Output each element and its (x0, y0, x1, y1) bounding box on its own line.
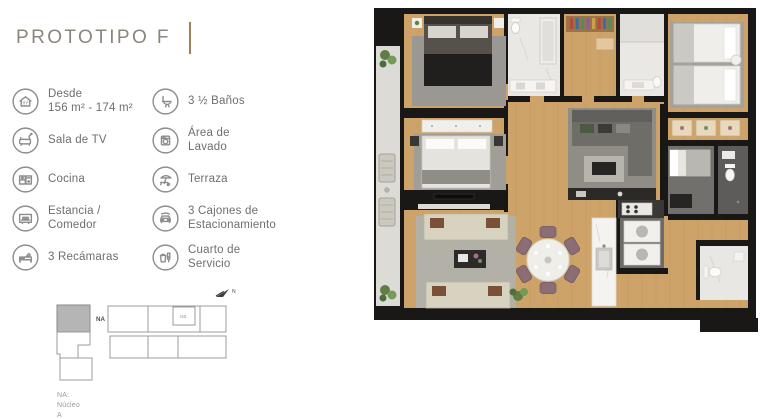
plan-terrace (376, 46, 400, 306)
plan-bathroom-2 (620, 14, 664, 96)
plan-master-bedroom (412, 16, 506, 106)
prototype-brochure-page: PROTOTIPO F m² Desde156 m² - 174 m² (0, 0, 773, 419)
minimap-legend: NA: Núcleo A NB: Núcleo B (57, 391, 80, 419)
highlighted-unit (57, 305, 90, 332)
legend-line: NA: Núcleo A (57, 391, 80, 419)
core-b-label: NB (180, 314, 186, 319)
svg-text:N: N (232, 289, 236, 295)
floor-plan-rendering (370, 8, 762, 334)
plan-bathroom-3 (700, 246, 748, 300)
plan-tv-room (568, 108, 656, 200)
plan-living-room (416, 214, 528, 308)
plan-laundry (620, 218, 664, 268)
plan-master-bathroom (508, 14, 560, 96)
plan-bedroom-3 (410, 120, 506, 190)
plan-bench-seats (672, 120, 740, 136)
plan-bedroom-2 (670, 22, 744, 108)
core-a-label: NA (96, 316, 105, 323)
north-arrow (216, 289, 229, 297)
plan-service-room (668, 146, 714, 214)
plan-powder-bath (718, 146, 748, 214)
